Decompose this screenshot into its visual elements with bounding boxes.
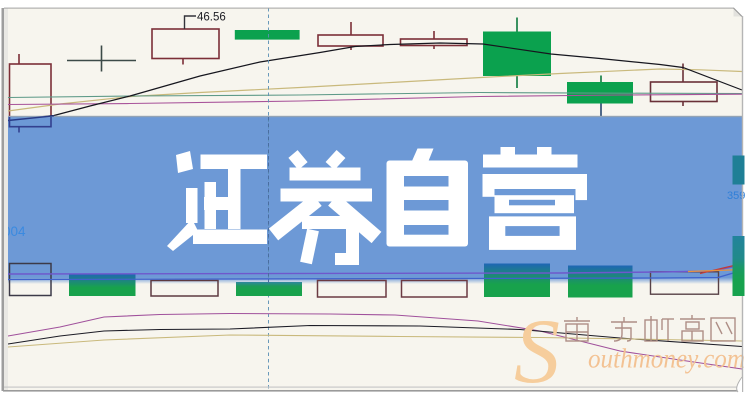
svg-text:outhmoney.com: outhmoney.com	[588, 343, 745, 374]
svg-text:S: S	[514, 300, 560, 400]
svg-text:46.56: 46.56	[197, 12, 226, 24]
